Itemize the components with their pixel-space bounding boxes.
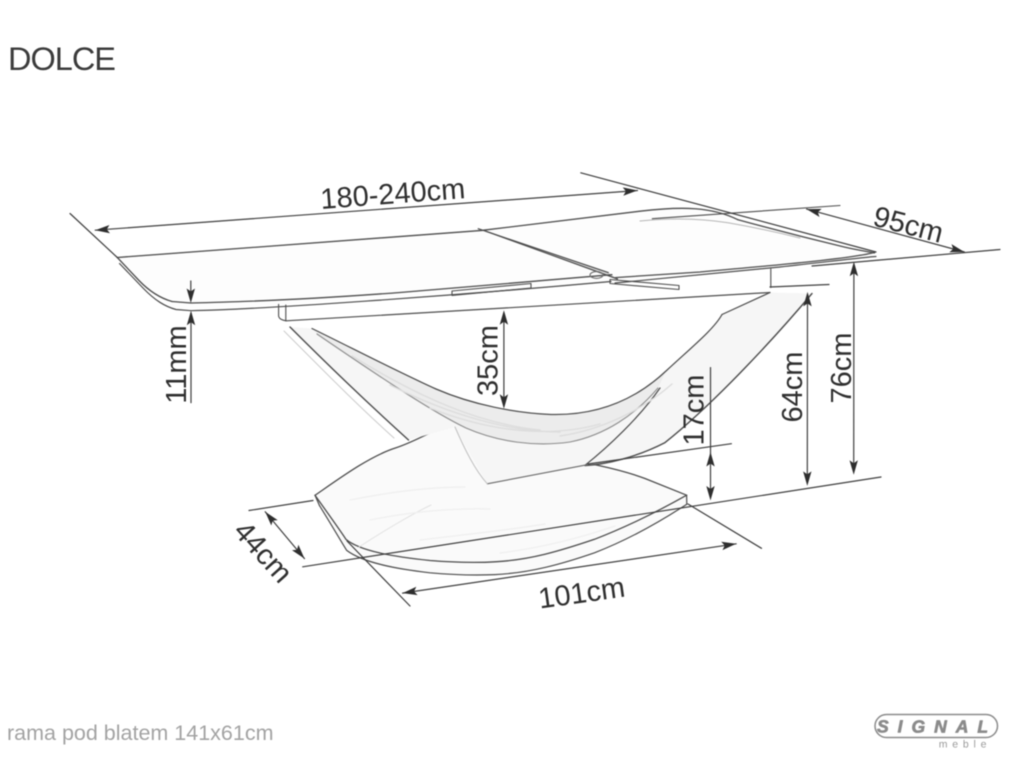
- svg-text:meble: meble: [939, 738, 992, 750]
- svg-text:DOLCE: DOLCE: [8, 41, 115, 77]
- svg-text:SIGNAL: SIGNAL: [877, 716, 997, 736]
- svg-text:11mm: 11mm: [161, 325, 193, 403]
- svg-text:64cm: 64cm: [777, 352, 809, 423]
- svg-text:rama pod blatem 141x61cm: rama pod blatem 141x61cm: [7, 721, 274, 745]
- svg-text:35cm: 35cm: [473, 325, 505, 396]
- svg-text:17cm: 17cm: [679, 375, 711, 446]
- svg-text:76cm: 76cm: [826, 333, 858, 404]
